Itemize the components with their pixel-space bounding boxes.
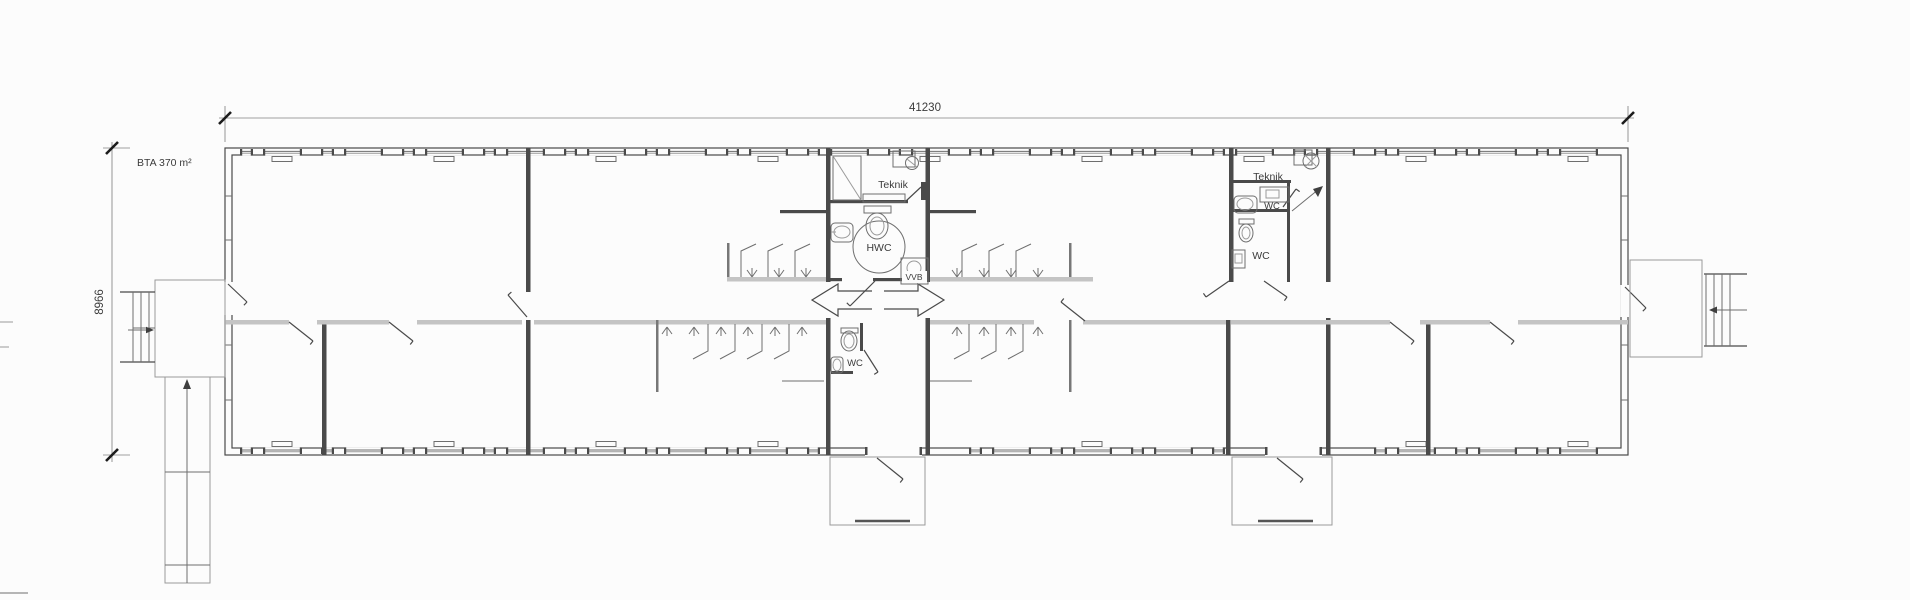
dimension-lines [103,106,1634,462]
room-label-teknik-right: Teknik [1253,171,1284,183]
south-porch-right [1232,457,1332,525]
right-stairs [1704,274,1747,346]
labels: 412308966BTA 370 m²TeknikHWCVVBWCTeknikW… [94,102,1284,369]
sink-icon [831,357,843,373]
room-label-wc-right-upper: WC [1264,201,1280,212]
right-platform [1630,260,1702,357]
cloakroom-screens [656,243,1072,392]
left-stairs [120,292,155,362]
toilet-icon [841,328,858,351]
south-porch-left [830,457,925,525]
room-label-teknik-left: Teknik [878,179,909,191]
room-label-wc-right-lower: WC [1252,250,1270,262]
entrance-direction-arrows [812,284,944,316]
sink-icon [831,223,853,242]
edge-marks [0,322,28,593]
sink-icon [1232,250,1245,268]
left-platform [155,280,225,377]
dimension-width-text: 41230 [909,102,941,114]
room-label-hwc: HWC [866,242,891,254]
access-ramp [165,377,210,583]
area-label: BTA 370 m² [137,157,192,169]
teknik-left-fixtures [833,151,919,202]
toilet-icon [1239,219,1254,242]
floor-plan-svg: 412308966BTA 370 m²TeknikHWCVVBWCTeknikW… [0,0,1910,600]
floor-plan-canvas: 412308966BTA 370 m²TeknikHWCVVBWCTeknikW… [0,0,1910,600]
room-label-wc-entrance: WC [847,358,863,369]
wc-right-lower-fixtures [1232,219,1254,268]
counter-icon [1260,187,1289,202]
dimension-height-text: 8966 [94,289,106,315]
room-label-vvb: VVB [905,272,922,282]
doors [228,186,1646,483]
